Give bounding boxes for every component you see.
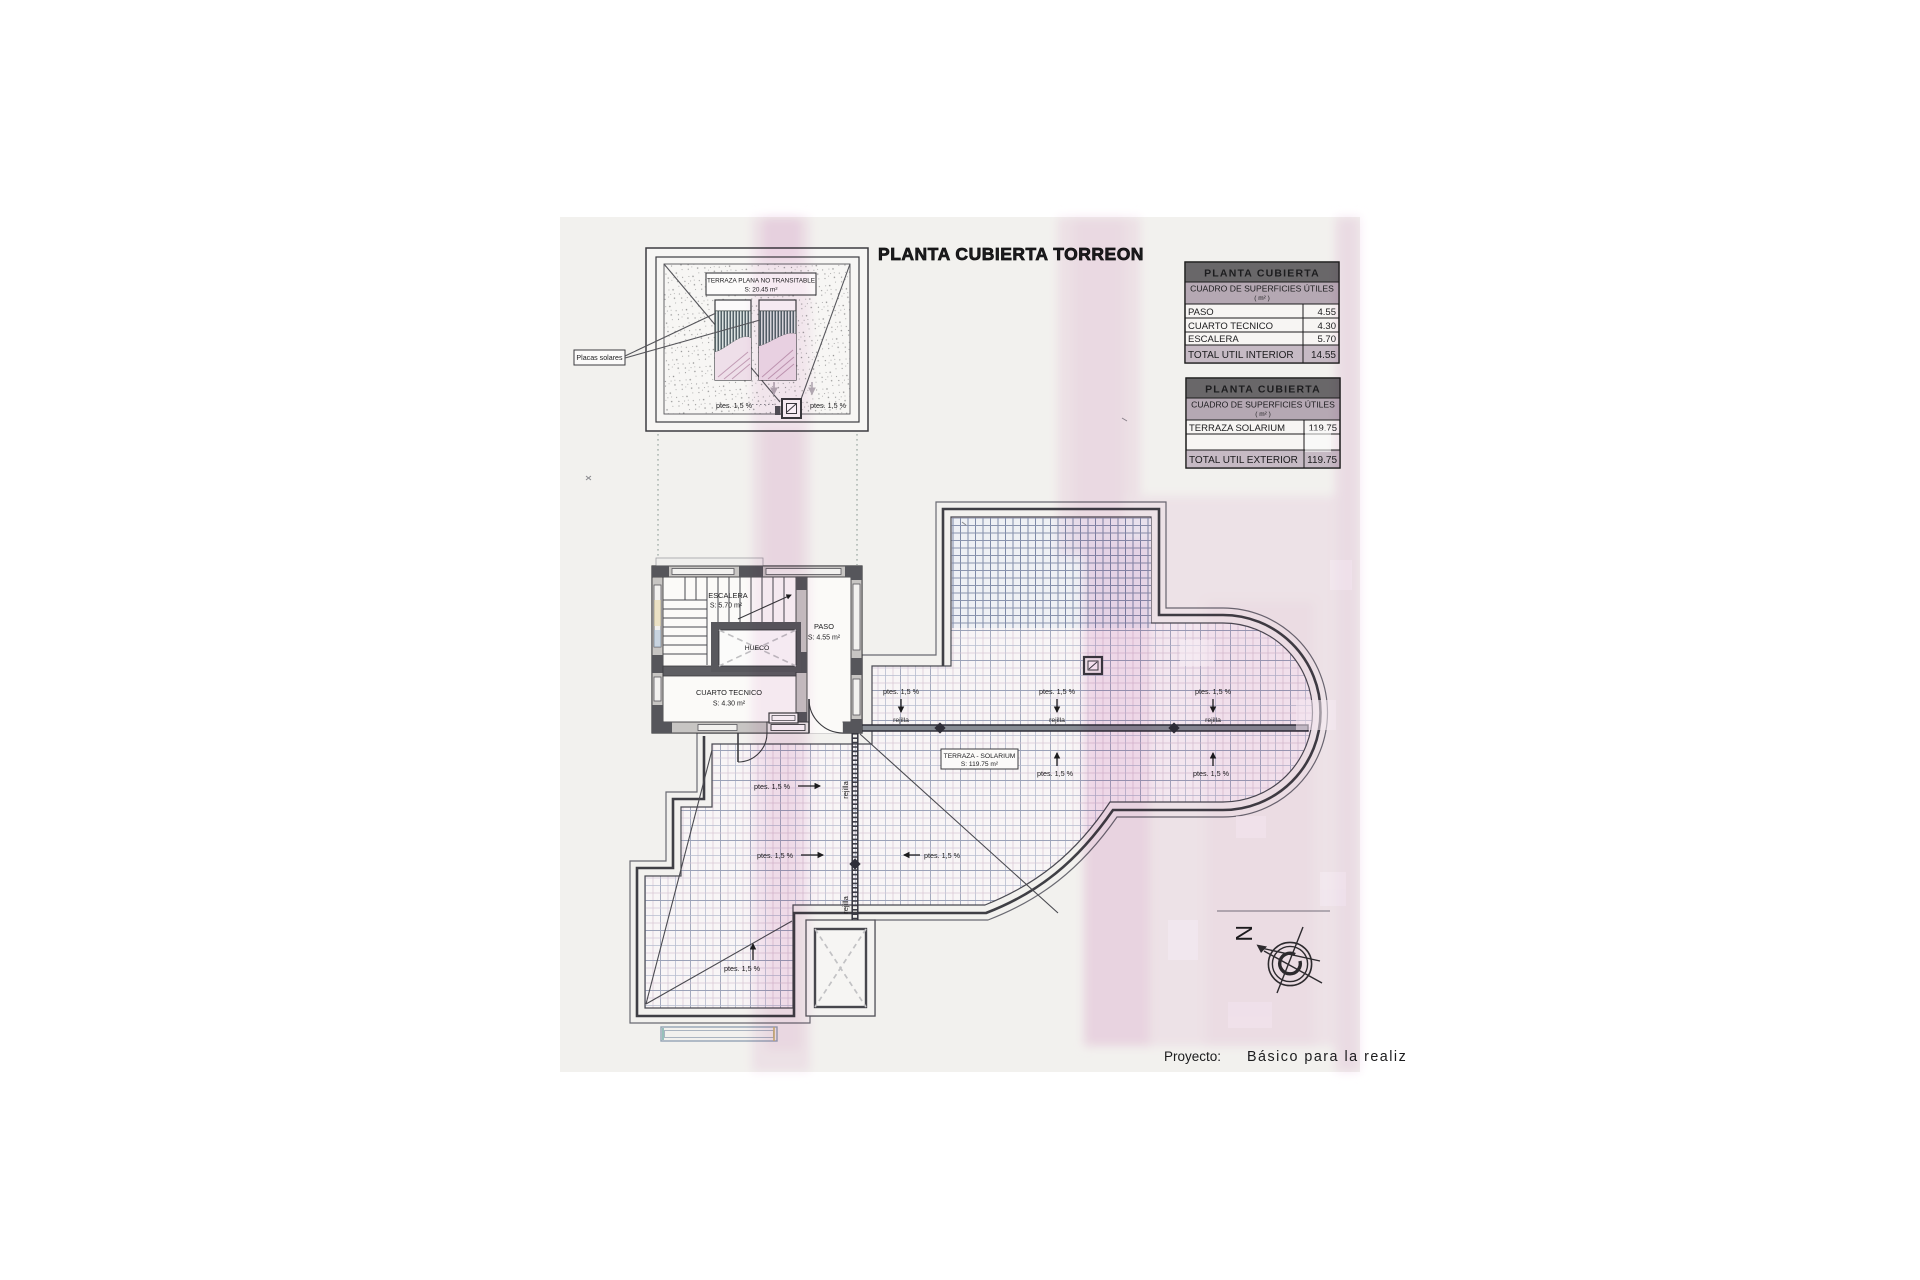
svg-text:ptes. 1,5 %: ptes. 1,5 % <box>810 401 847 410</box>
svg-text:ESCALERA: ESCALERA <box>708 591 748 600</box>
svg-text:TOTAL UTIL EXTERIOR: TOTAL UTIL EXTERIOR <box>1189 455 1298 466</box>
svg-text:ptes. 1,5 %: ptes. 1,5 % <box>924 851 961 860</box>
svg-text:rejilla: rejilla <box>841 780 850 798</box>
svg-text:4.30: 4.30 <box>1318 321 1337 332</box>
svg-text:PASO: PASO <box>814 622 834 631</box>
svg-text:CUADRO DE SUPERFICIES ÚTILES: CUADRO DE SUPERFICIES ÚTILES <box>1190 284 1334 294</box>
svg-text:rejilla: rejilla <box>1049 717 1065 724</box>
svg-text:S: 5.70 m²: S: 5.70 m² <box>710 603 743 610</box>
svg-text:rejilla: rejilla <box>893 717 909 724</box>
svg-text:Placas solares: Placas solares <box>576 354 623 362</box>
svg-text:( m² ): ( m² ) <box>1255 411 1271 418</box>
svg-text:ptes. 1,5 %: ptes. 1,5 % <box>1037 769 1074 778</box>
svg-text:Proyecto:: Proyecto: <box>1164 1049 1221 1064</box>
svg-text:CUADRO DE SUPERFICIES ÚTILES: CUADRO DE SUPERFICIES ÚTILES <box>1191 400 1335 410</box>
svg-text:TERRAZA - SOLARIUM: TERRAZA - SOLARIUM <box>944 753 1016 760</box>
svg-text:rejilla: rejilla <box>841 895 850 913</box>
svg-text:S: 4.55 m²: S: 4.55 m² <box>808 635 841 642</box>
svg-text:4.55: 4.55 <box>1318 307 1337 318</box>
svg-text:ESCALERA: ESCALERA <box>1188 334 1239 345</box>
svg-text:( m² ): ( m² ) <box>1254 295 1270 302</box>
svg-text:119.75: 119.75 <box>1307 455 1337 466</box>
svg-text:ptes. 1,5 %: ptes. 1,5 % <box>883 687 920 696</box>
svg-text:ptes. 1,5 %: ptes. 1,5 % <box>716 401 753 410</box>
svg-text:PLANTA CUBIERTA: PLANTA CUBIERTA <box>1205 384 1321 396</box>
svg-text:5.70: 5.70 <box>1318 334 1337 345</box>
svg-text:14.55: 14.55 <box>1311 350 1336 361</box>
svg-text:CUARTO TECNICO: CUARTO TECNICO <box>1188 321 1273 332</box>
svg-text:ptes. 1,5 %: ptes. 1,5 % <box>1039 687 1076 696</box>
svg-text:Básico para la realiz: Básico para la realiz <box>1247 1049 1407 1065</box>
svg-text:S: 119.75 m²: S: 119.75 m² <box>961 761 999 768</box>
svg-text:TERRAZA SOLARIUM: TERRAZA SOLARIUM <box>1189 423 1285 434</box>
svg-text:PASO: PASO <box>1188 307 1214 318</box>
svg-text:S: 4.30 m²: S: 4.30 m² <box>713 701 746 708</box>
svg-text:PLANTA CUBIERTA: PLANTA CUBIERTA <box>1204 268 1320 280</box>
svg-text:TOTAL UTIL INTERIOR: TOTAL UTIL INTERIOR <box>1188 350 1294 361</box>
